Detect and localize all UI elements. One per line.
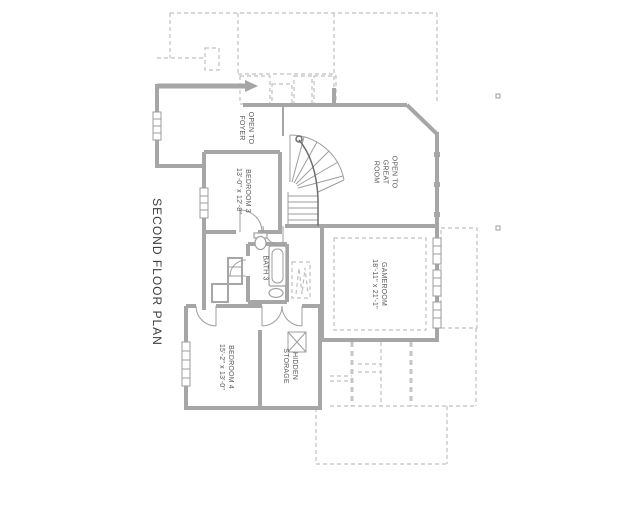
- storage-door-right: [282, 306, 302, 326]
- foyer-window: [153, 112, 161, 140]
- room-label-hidden-storage: HIDDEN STORAGE: [281, 348, 299, 384]
- floor-plan-page: SECOND FLOOR PLAN OPEN TO FOYER BEDROOM …: [0, 0, 640, 512]
- floor-plan-drawing: [0, 0, 640, 512]
- windows: [153, 112, 441, 386]
- bedroom3-window: [200, 188, 208, 218]
- plan-title: SECOND FLOOR PLAN: [150, 198, 164, 346]
- dashed-lower-floor-outline: [316, 94, 500, 464]
- mechanical-niche: [292, 262, 310, 298]
- storage-door-left: [262, 306, 282, 326]
- room-label-bath3: BATH 3: [260, 255, 269, 280]
- marker-square-top: [496, 94, 500, 98]
- bath3-door: [230, 260, 246, 276]
- bedroom4-window: [182, 342, 190, 386]
- gameroom-windows: [433, 238, 441, 328]
- hall-closet: [228, 258, 242, 284]
- room-label-open-to-foyer: OPEN TO FOYER: [237, 112, 255, 145]
- beam-arrow-icon: [245, 80, 258, 92]
- linen-closet: [212, 284, 228, 302]
- staircase: [288, 135, 344, 226]
- marker-square-bottom: [496, 226, 500, 230]
- room-label-open-to-great-room: OPEN TO GREAT ROOM: [371, 156, 398, 189]
- sink: [269, 289, 283, 298]
- dashed-roof-outline: [157, 13, 437, 104]
- toilet: [255, 237, 266, 250]
- room-label-bedroom4: BEDROOM 4 15'-2" x 13'-0": [217, 344, 235, 390]
- room-label-bedroom3: BEDROOM 3 13'-0" x 12'-8": [234, 168, 252, 214]
- chimney-outline: [205, 48, 219, 70]
- plan-title-text: SECOND FLOOR PLAN: [150, 198, 164, 346]
- room-label-gameroom: GAMEROOM 18'-11" x 21'-1": [370, 259, 388, 309]
